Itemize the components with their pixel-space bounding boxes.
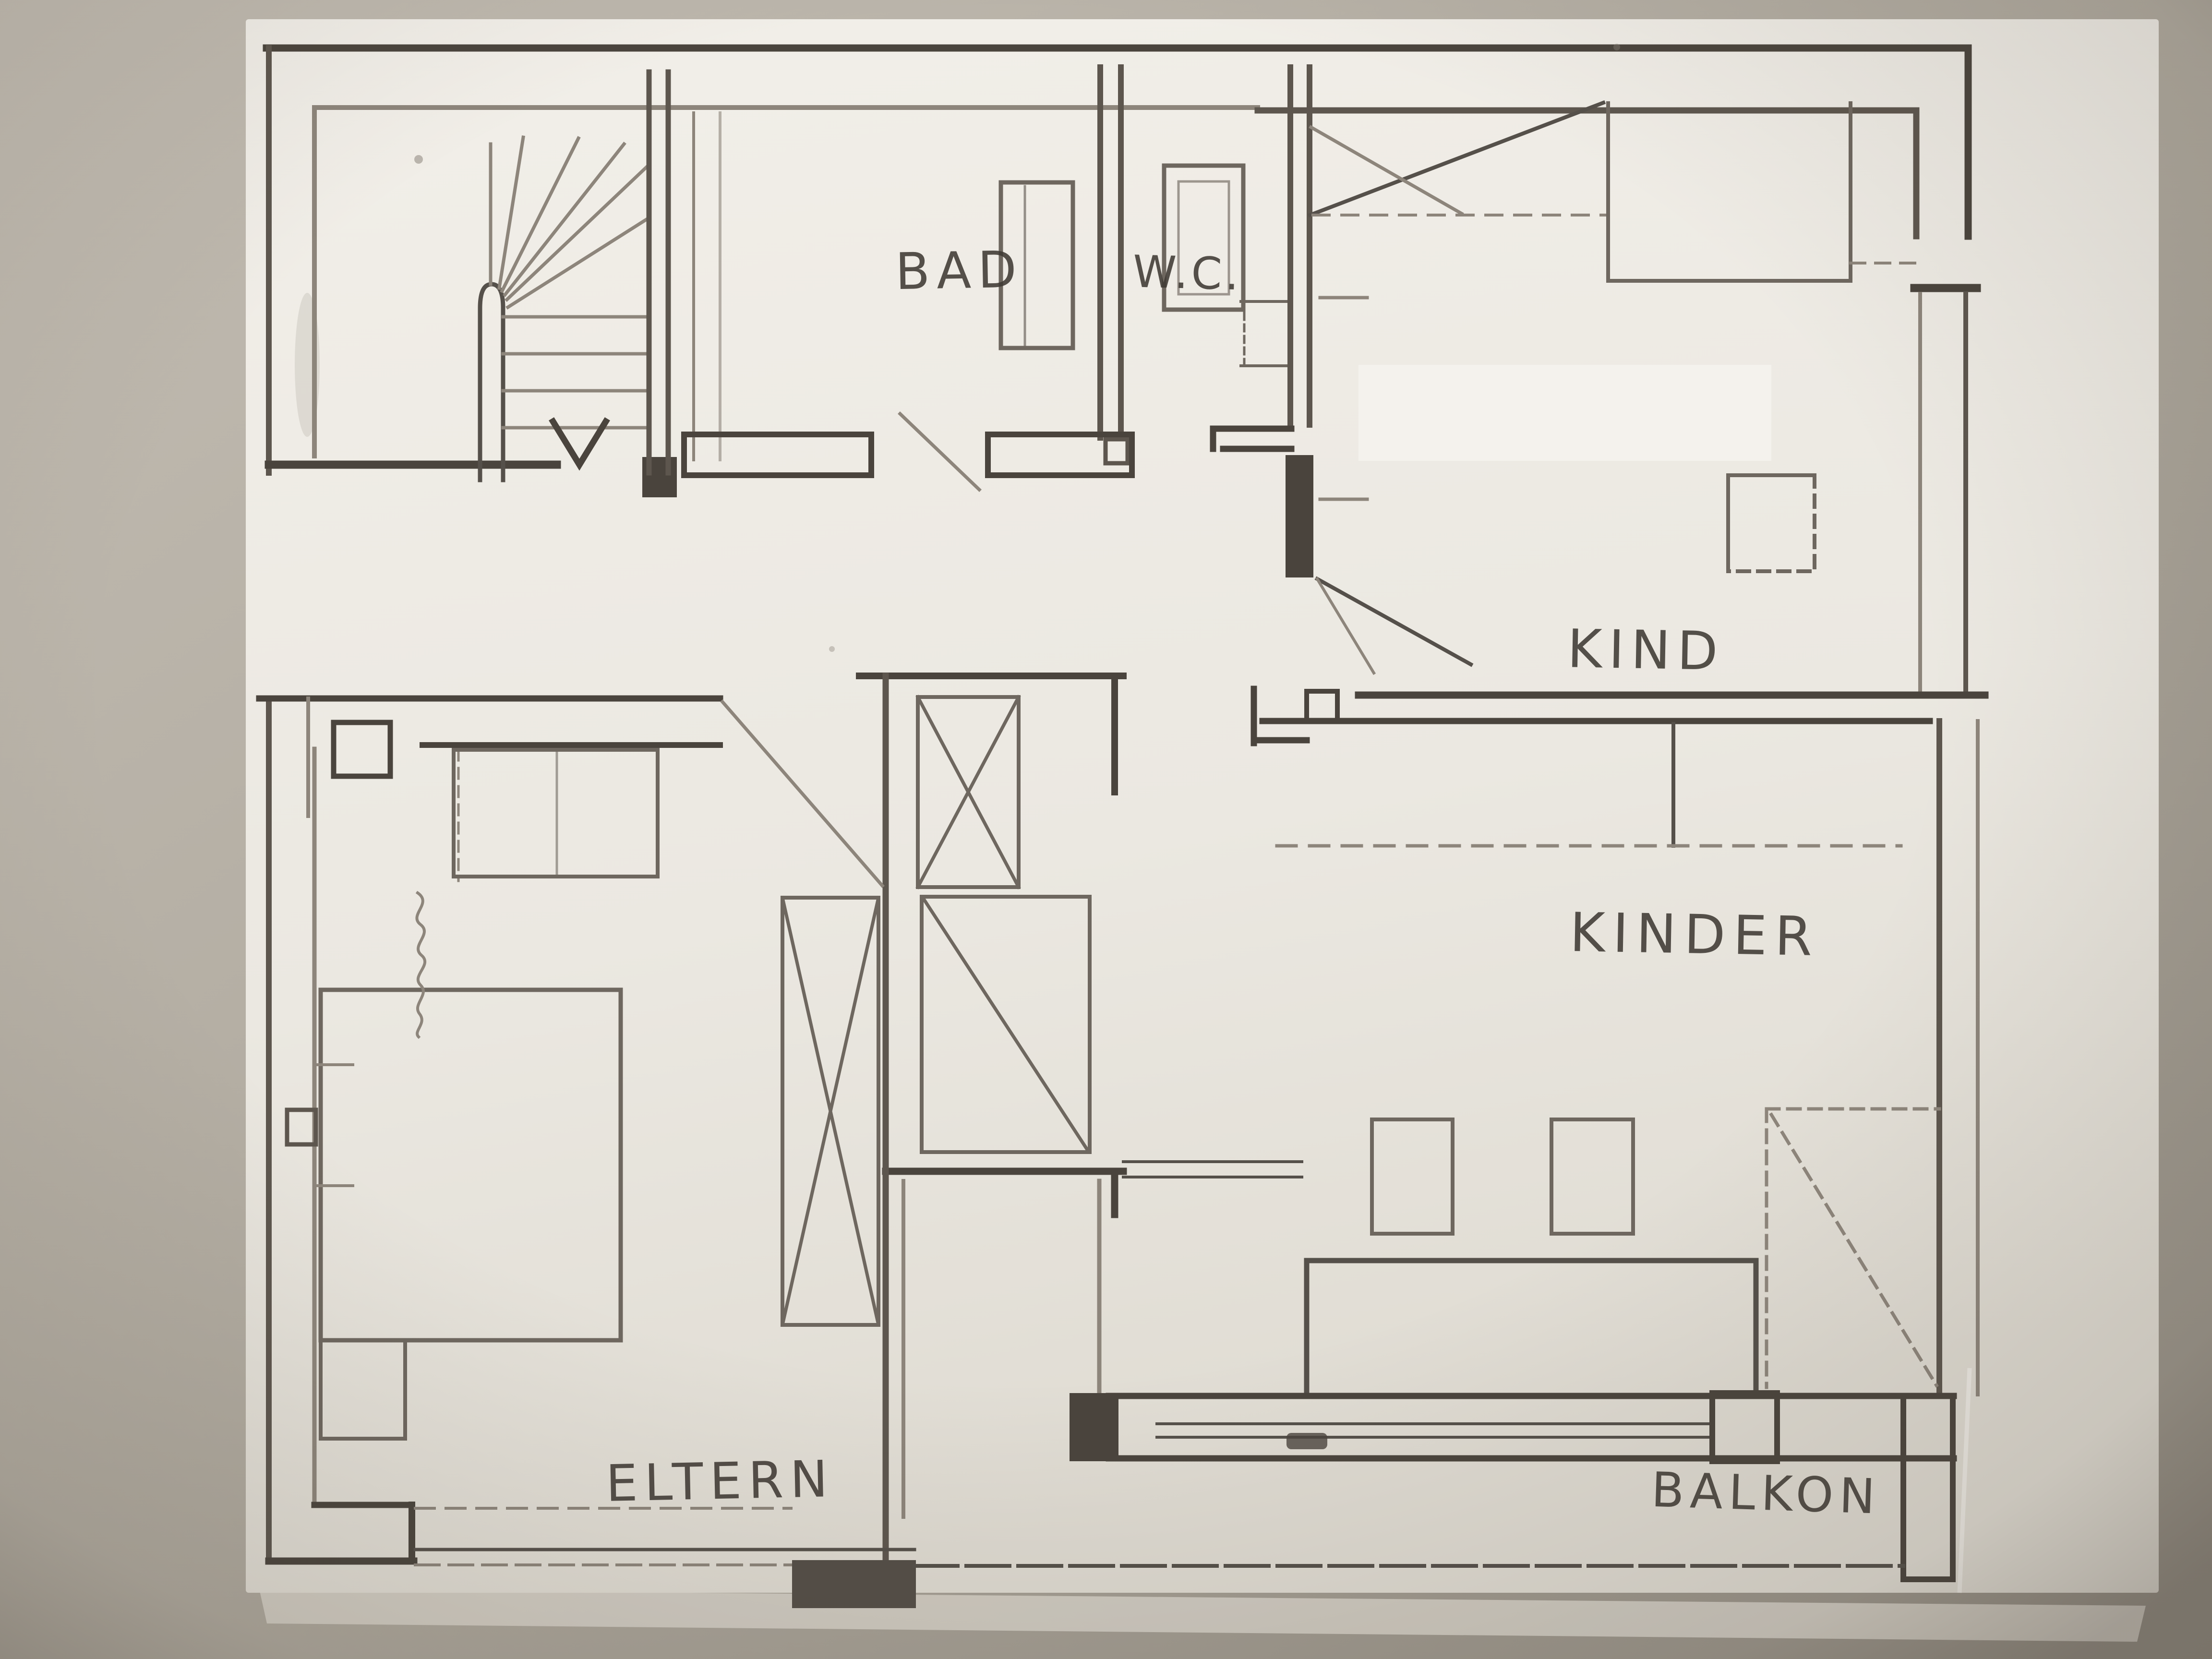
floor-plan-photo: BAD W.C. KIND KINDER ELTERN BALKON bbox=[0, 0, 2212, 1659]
photo-vignette bbox=[0, 0, 2212, 1659]
